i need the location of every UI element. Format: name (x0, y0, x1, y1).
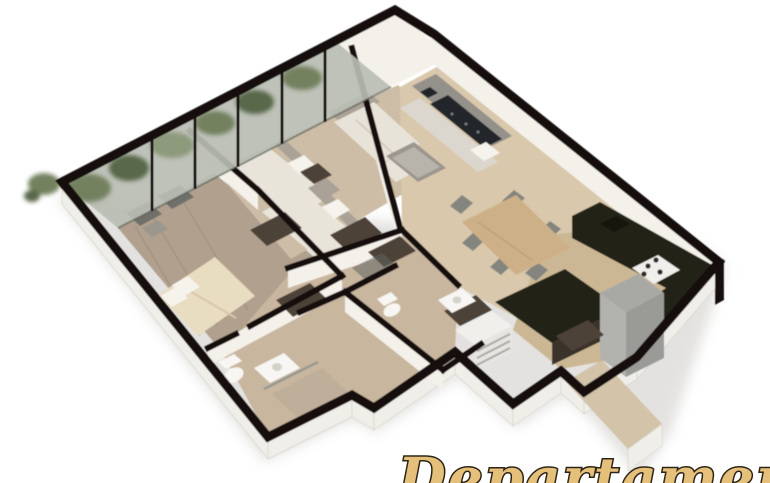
floor-plan-page: Departamento (0, 0, 770, 483)
caption-departamento: Departamento (396, 445, 770, 483)
apartment-floor-plan-render: Departamento (0, 0, 770, 483)
wall-end-cap (715, 259, 724, 305)
isometric-plan (24, 10, 726, 478)
